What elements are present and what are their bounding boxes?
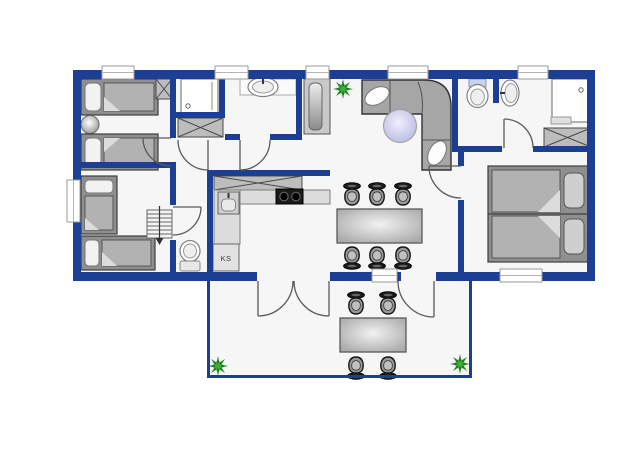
stove [276,189,303,204]
dining-area [337,183,422,270]
chair [348,292,365,314]
chair [344,183,361,205]
floor-plan-canvas: KS [0,0,640,452]
chair [380,292,397,314]
plant-icon [450,354,470,374]
shower [552,79,590,122]
single-bed [81,176,117,234]
window [67,180,80,222]
bedside-table [81,116,99,134]
wardrobe [178,118,223,137]
sink [218,192,239,214]
fridge-label: KS [220,254,231,263]
toilet-tank [180,261,200,271]
bedroom-right [488,166,592,262]
chair [344,247,361,269]
single-bed [81,79,158,115]
wardrobe [156,79,172,99]
terrace-table [340,318,406,352]
window [500,269,542,282]
single-bed [81,236,155,270]
window [518,66,548,79]
wc-room [180,241,200,272]
chair [369,183,386,205]
window [215,66,248,79]
floor-plan-svg: KS [0,0,640,452]
washbasin-room [240,78,296,97]
chair [395,183,412,205]
window [388,66,428,79]
plant-icon [333,79,353,99]
chair [395,247,412,269]
wardrobe [544,128,591,147]
window [306,66,329,79]
upper-cabinets [214,176,302,190]
tall-cabinet [304,79,330,134]
shower-room-left [181,79,218,113]
fridge: KS [213,244,239,271]
window [372,269,397,282]
chair [369,247,386,269]
plant-icon [208,356,228,376]
dining-table [337,209,422,243]
shower-step [551,117,571,124]
window [102,66,134,79]
round-table [384,110,417,143]
double-bed [488,166,588,262]
